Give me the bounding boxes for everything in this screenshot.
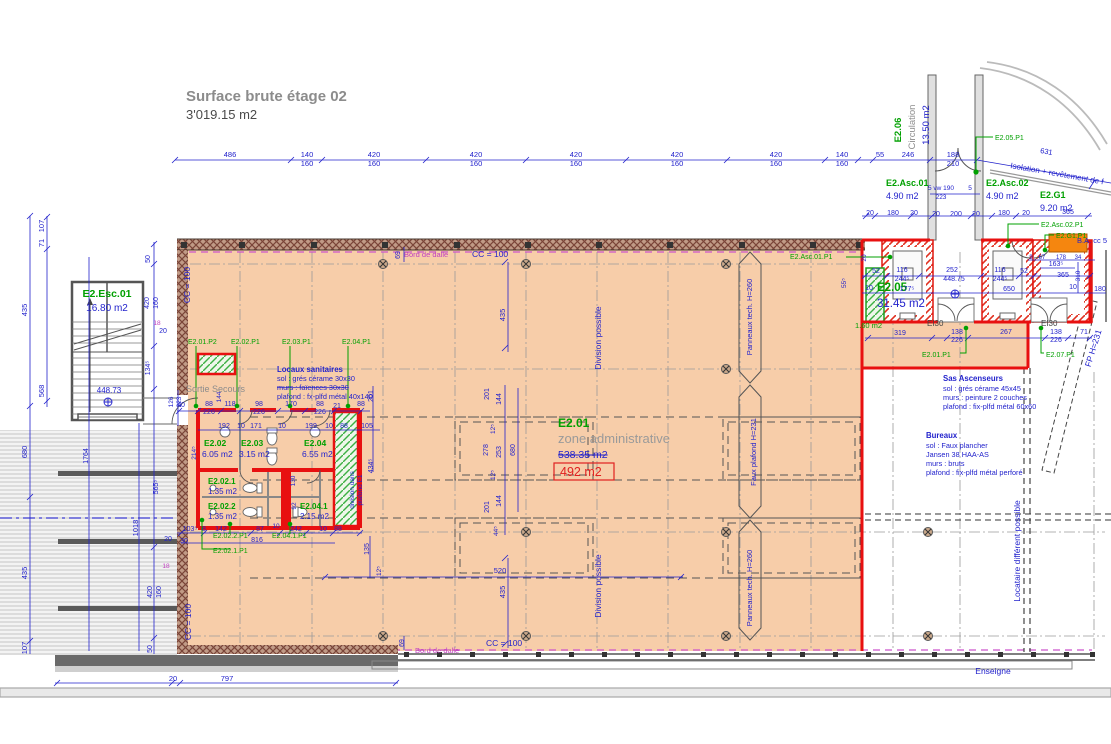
plan-label: 816 bbox=[251, 537, 263, 544]
plan-label: 199 bbox=[305, 423, 317, 430]
plan-label: 160 bbox=[301, 159, 314, 168]
plan-label: Bord de dalle bbox=[415, 646, 459, 655]
note-line: plafond : fix-plfd métal 60x60 bbox=[943, 402, 1036, 411]
plan-label: 160 bbox=[570, 159, 583, 168]
plan-label: 20 bbox=[169, 674, 177, 683]
plan-label: Division possible bbox=[593, 554, 603, 618]
plan-label: 242 bbox=[290, 526, 302, 533]
plan-label: E2.03 bbox=[241, 438, 263, 448]
note-line: sol : Faux plancher bbox=[926, 441, 988, 450]
plan-label: 210 bbox=[947, 159, 960, 168]
plan-label: 52 bbox=[1020, 268, 1028, 275]
plan-label: 420 bbox=[368, 150, 381, 159]
plan-label: EI30 bbox=[1041, 319, 1058, 328]
plan-label: 144 bbox=[496, 393, 503, 405]
plan-label: 5 bbox=[968, 185, 972, 192]
plan-label: 98 bbox=[255, 401, 263, 408]
plan-label: 116 bbox=[896, 267, 907, 274]
plan-label: 160 bbox=[368, 159, 381, 168]
plan-label: 310 bbox=[1075, 270, 1082, 281]
plan-label: 1018 bbox=[131, 520, 140, 537]
plan-label: 223 bbox=[936, 194, 947, 201]
plan-label: 20 bbox=[972, 211, 980, 218]
plan-label: 10 bbox=[865, 285, 873, 292]
plan-label: 142 bbox=[215, 526, 227, 533]
plan-label: 201 bbox=[484, 388, 491, 400]
plan-label: E2.Asc.02.P1 bbox=[1041, 222, 1084, 229]
small-shaft-box bbox=[198, 354, 235, 374]
plan-label: 420 bbox=[570, 150, 583, 159]
plan-label: 1.60 m2 bbox=[855, 321, 882, 330]
note-title: Bureaux bbox=[926, 431, 958, 440]
plan-label: 180 bbox=[1094, 286, 1106, 293]
plan-label: 160 bbox=[770, 159, 783, 168]
plan-label: Panneaux tech. H=260 bbox=[745, 550, 754, 627]
plan-label: 2.15 m2 bbox=[300, 512, 329, 521]
plan-label: CC = 100 bbox=[182, 267, 192, 303]
plan-label: 18 bbox=[153, 320, 161, 327]
plan-label: 44⁵ bbox=[493, 526, 500, 536]
plan-label: 69 bbox=[395, 251, 402, 259]
note-line: murs : peinture 2 couches bbox=[943, 393, 1027, 402]
plan-label: 18 bbox=[162, 563, 170, 570]
plan-label: 253 bbox=[496, 446, 503, 458]
plan-label: 10 bbox=[319, 526, 327, 533]
plan-label: 55 bbox=[876, 150, 884, 159]
plan-label: 214⁵ bbox=[191, 446, 198, 460]
plan-label: 160 bbox=[470, 159, 483, 168]
plan-label: E2.06 bbox=[893, 118, 904, 143]
plan-label: 88 bbox=[316, 401, 324, 408]
plan-label: 144 bbox=[496, 495, 503, 507]
plan-label: 680 bbox=[510, 444, 517, 456]
plan-label: 435 bbox=[20, 304, 29, 317]
plan-label: EI30 bbox=[927, 319, 944, 328]
plan-label: 69 bbox=[399, 639, 406, 647]
plan-label: 365 bbox=[1062, 209, 1074, 216]
plan-label: E2.02.1.P1 bbox=[213, 548, 248, 555]
plan-label: 144 bbox=[216, 391, 223, 402]
floor-plan-page: 4861401604201604201604201604201604201601… bbox=[0, 0, 1111, 744]
plan-label: 55⁵ bbox=[841, 278, 848, 288]
page-area-total: 3'019.15 m2 bbox=[186, 107, 257, 122]
plan-label: 797 bbox=[221, 674, 234, 683]
plan-label: 126 bbox=[168, 396, 175, 407]
plan-label: 160 bbox=[153, 297, 160, 309]
plan-label: 4.90 m2 bbox=[886, 191, 919, 201]
plan-label: 140 bbox=[836, 150, 849, 159]
plan-label: 20 bbox=[159, 328, 167, 335]
plan-label: 226 bbox=[314, 409, 326, 416]
plan-label: 192 bbox=[218, 423, 230, 430]
plan-label: 20 bbox=[1022, 210, 1030, 217]
plan-label: 1.35 m2 bbox=[208, 512, 237, 521]
bottom-wall-left bbox=[177, 645, 398, 654]
plan-label: 188 bbox=[947, 150, 960, 159]
plan-label: plafond E1 bbox=[357, 474, 364, 505]
plan-label: 178 bbox=[1056, 255, 1067, 261]
plan-label: 448.73 bbox=[97, 386, 122, 395]
plan-label: 21 bbox=[333, 403, 341, 410]
note-title: Locaux sanitaires bbox=[277, 365, 344, 374]
plan-label: E2.Asc.01 bbox=[886, 178, 929, 188]
plan-label: 177⁵ bbox=[900, 286, 915, 293]
plan-label: 20 bbox=[861, 254, 868, 262]
plan-label: 1.35 m2 bbox=[208, 487, 237, 496]
plan-label: 140 bbox=[301, 150, 314, 159]
plan-label: 5 vw 190 bbox=[928, 185, 954, 192]
plan-label: E2.04.1 bbox=[300, 502, 328, 511]
plan-label: Division possible bbox=[593, 306, 603, 370]
plan-label: 10 bbox=[237, 423, 245, 430]
note-line: Jansen 38 HAA-AS bbox=[926, 450, 989, 459]
plan-label: 486 bbox=[224, 150, 237, 159]
plan-label: 103⁵ bbox=[183, 526, 198, 533]
plan-label: E2.02.P1 bbox=[231, 339, 260, 346]
plan-label: 135 bbox=[364, 543, 371, 555]
plan-label: 134⁵ bbox=[145, 361, 152, 376]
plan-label: 160 bbox=[671, 159, 684, 168]
plan-label: 10 bbox=[325, 423, 333, 430]
note-line: plafond : fix-plfd métal perforé bbox=[926, 468, 1023, 477]
plan-label: 67 bbox=[1039, 255, 1046, 261]
plan-label: 565⁵ bbox=[153, 480, 160, 495]
plan-label: 319 bbox=[894, 330, 906, 337]
plan-label: E2.Asc.02 bbox=[986, 178, 1029, 188]
plan-label: 34 bbox=[1075, 255, 1082, 261]
plan-label: E2.Esc.01 bbox=[82, 288, 131, 300]
plan-label: E2.04.1.P1 bbox=[272, 533, 307, 540]
plan-label: 420 bbox=[671, 150, 684, 159]
plan-label: 226 bbox=[253, 409, 265, 416]
plan-label: 88 bbox=[340, 423, 348, 430]
plan-label: 434⁵ bbox=[368, 459, 375, 474]
plan-label: 568 bbox=[37, 385, 46, 398]
plan-label: 88 bbox=[205, 401, 213, 408]
plan-label: 107 bbox=[37, 220, 46, 233]
plan-label: E2.04 bbox=[304, 438, 326, 448]
plan-label: 88 bbox=[357, 401, 365, 408]
plan-label: 226 bbox=[951, 337, 963, 344]
plan-label: 138 bbox=[951, 329, 963, 336]
plan-label: 160 bbox=[156, 586, 163, 598]
plan-label: 180 bbox=[887, 210, 899, 217]
plan-label: 20 bbox=[866, 210, 874, 217]
plan-label: 31.45 m2 bbox=[877, 298, 925, 310]
plan-label: E2.G1 bbox=[1040, 190, 1066, 200]
plan-label: 50 bbox=[147, 645, 154, 653]
plan-label: Bord de dalle bbox=[404, 250, 448, 259]
plan-label: 365 bbox=[1057, 272, 1069, 279]
plan-label: 278 bbox=[483, 444, 490, 456]
plan-label: 16.80 m2 bbox=[86, 303, 128, 314]
plan-label: 267 bbox=[1000, 329, 1012, 336]
plan-label: Faux plafond H=231 bbox=[749, 418, 758, 486]
plan-label: E2.03.P1 bbox=[282, 339, 311, 346]
plan-label: 4.90 m2 bbox=[986, 191, 1019, 201]
zone-name: zone administrative bbox=[558, 431, 670, 446]
floor-plan-drawing: 4861401604201604201604201604201604201601… bbox=[0, 0, 1111, 744]
plan-label: 244⁵ bbox=[895, 276, 910, 283]
plan-label: CC = 100 bbox=[183, 604, 193, 640]
note-line: murs : faïences 30x30 bbox=[277, 383, 349, 392]
plan-label: 118 bbox=[224, 401, 235, 408]
plan-label: E2.01.P2 bbox=[188, 339, 217, 346]
plan-label: 650 bbox=[1003, 286, 1015, 293]
plan-label: 246 bbox=[902, 150, 915, 159]
plan-label: 171 bbox=[250, 423, 262, 430]
plan-label: 10 bbox=[278, 423, 286, 430]
plan-label: 252 bbox=[946, 267, 958, 274]
plan-label: 10 bbox=[272, 523, 280, 530]
plan-label: 12⁵ bbox=[490, 470, 497, 480]
plan-label: 163⁵ bbox=[1049, 261, 1064, 268]
plan-label: 201 bbox=[484, 501, 491, 513]
plan-label: 1764 bbox=[83, 448, 90, 464]
note-line: sol : grés cérame 30x30 bbox=[277, 374, 355, 383]
plan-label: 226 bbox=[1050, 337, 1062, 344]
plan-label: Circulation bbox=[907, 105, 918, 150]
plan-label: 107 bbox=[20, 642, 29, 655]
plan-label: 30 bbox=[180, 538, 188, 545]
plan-label: 170 bbox=[285, 401, 297, 408]
plan-label: E2.01.P1 bbox=[922, 352, 951, 359]
plan-label: 20 bbox=[932, 211, 940, 218]
plan-label: 20 bbox=[164, 536, 172, 543]
plan-label: 71 bbox=[37, 239, 46, 247]
plan-label: E2.05.P1 bbox=[995, 135, 1024, 142]
plan-label: 3.15 m2 bbox=[239, 449, 270, 459]
plan-label: 87 bbox=[256, 526, 264, 533]
plan-label: 10 bbox=[1069, 284, 1077, 291]
plan-label: CC = 100 bbox=[472, 249, 508, 259]
plan-label: 244⁵ bbox=[993, 276, 1008, 283]
plan-label: 435 bbox=[498, 586, 507, 599]
plan-label: E2.G1.P1 bbox=[1056, 233, 1086, 240]
plan-label: E2.02.1 bbox=[208, 477, 236, 486]
plan-label: 435 bbox=[498, 309, 507, 322]
plan-label: 6.05 m2 bbox=[202, 449, 233, 459]
plan-label: E2.04.P1 bbox=[342, 339, 371, 346]
plan-label: division dans bbox=[349, 470, 356, 508]
plan-label: 116 bbox=[994, 267, 1005, 274]
plan-label: 420 bbox=[144, 297, 151, 309]
note-line: sol : grés cérame 45x45 bbox=[943, 384, 1021, 393]
plan-label: 105 bbox=[361, 423, 373, 430]
plan-label: E2.07.P1 bbox=[1046, 352, 1075, 359]
plan-label: Enseigne bbox=[975, 666, 1011, 676]
plan-label: 448.75 bbox=[943, 276, 965, 283]
ground-band bbox=[0, 688, 1111, 697]
plan-label: 138 bbox=[1050, 329, 1062, 336]
plan-label: E2.02 bbox=[204, 438, 226, 448]
note-title: Sas Ascenseurs bbox=[943, 374, 1004, 383]
plan-label: 71 bbox=[1080, 329, 1088, 336]
note-line: murs : bruts bbox=[926, 459, 965, 468]
plan-label: 8 bbox=[202, 526, 206, 533]
plan-label: 12⁵ bbox=[376, 566, 383, 576]
plan-label: Panneaux tech. H=260 bbox=[745, 279, 754, 356]
plan-label: 226 bbox=[203, 409, 215, 416]
plan-label: 50 bbox=[145, 255, 152, 263]
plan-label: 420 bbox=[470, 150, 483, 159]
plan-label: E2.02.2 bbox=[208, 502, 236, 511]
plan-label: E2.02.2.P1 bbox=[213, 533, 248, 540]
zone-id: E2.01 bbox=[558, 416, 590, 430]
zone-area-old: 538.35 m2 bbox=[558, 449, 608, 461]
plan-label: 160 bbox=[836, 159, 849, 168]
plan-label: 40 bbox=[177, 402, 185, 409]
plan-label: 12⁵ bbox=[490, 424, 497, 434]
plan-label: CC = 100 bbox=[486, 638, 522, 648]
plan-label: 520 bbox=[494, 566, 507, 575]
plan-label: 130 bbox=[290, 475, 297, 486]
plan-label: 680 bbox=[20, 446, 29, 459]
page-title: Surface brute étage 02 bbox=[186, 88, 347, 105]
plan-label: Locataire différent possible bbox=[1012, 500, 1022, 602]
top-facade-wall bbox=[177, 239, 865, 250]
plan-label: 435 bbox=[20, 567, 29, 580]
plan-label: 420 bbox=[147, 586, 154, 598]
plan-label: 420 bbox=[770, 150, 783, 159]
zone-area-new: 492 m2 bbox=[560, 465, 602, 479]
plan-label: 200 bbox=[950, 211, 962, 218]
plan-label: 52 bbox=[872, 268, 880, 275]
plan-label: 88 bbox=[334, 526, 342, 533]
plan-label: E2.Asc.01.P1 bbox=[790, 254, 833, 261]
plan-label: 20 bbox=[910, 210, 918, 217]
plan-label: 180 bbox=[998, 210, 1010, 217]
plan-label: 92 bbox=[291, 502, 298, 510]
plan-label: 6.55 m2 bbox=[302, 449, 333, 459]
plan-label: 13.50 m2 bbox=[921, 105, 932, 145]
note-line: plafond : fx-plfd métal 40x140 bbox=[277, 392, 373, 401]
